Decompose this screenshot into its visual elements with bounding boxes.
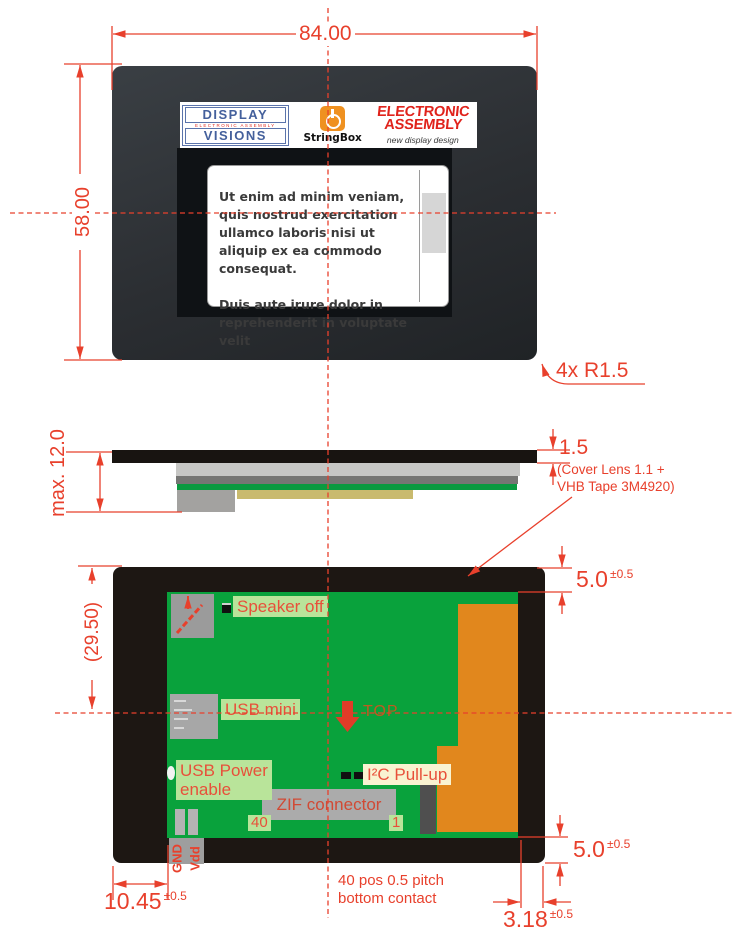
dim-max-height-label: max. 12.0: [48, 425, 68, 521]
electronic-assembly-logo: ELECTRONIC ASSEMBLY new display design: [369, 106, 477, 145]
orange-component: [458, 604, 518, 832]
zif-connector: ZIF connector: [262, 789, 396, 820]
i2c-resistor-1: [341, 772, 351, 779]
stringbox-label: StringBox: [303, 132, 363, 144]
screen-panel: Ut enim ad minim veniam, quis nostrud ex…: [207, 165, 449, 307]
scrollbar-track: [419, 170, 420, 302]
orange-component-step: [437, 746, 459, 832]
dim-top-label: 5.0±0.5: [576, 566, 633, 593]
usb-mini-connector: [170, 694, 218, 739]
side-layer-darkgray: [176, 476, 518, 484]
cover-lens-note: (Cover Lens 1.1 + VHB Tape 3M4920): [557, 461, 675, 495]
display-visions-logo: DISPLAY ELECTRONIC ASSEMBLY VISIONS: [182, 105, 289, 146]
zif-pin1-label: 1: [389, 815, 403, 831]
dv-logo-line2: ELECTRONIC ASSEMBLY: [185, 123, 286, 128]
scrollbar-thumb: [422, 193, 446, 253]
screen-paragraph-1: Ut enim ad minim veniam, quis nostrud ex…: [219, 188, 417, 278]
bottom-contact-note: 40 pos 0.5 pitch bottom contact: [338, 872, 444, 908]
ea-logo-tagline: new display design: [369, 135, 477, 145]
dim-height-label: 58.00: [72, 174, 94, 250]
usb-power-label: USB Power enable: [176, 760, 272, 800]
side-layer-lightgray: [176, 463, 520, 476]
vdd-label: Vdd: [189, 839, 202, 879]
corner-radius-label: 4x R1.5: [556, 359, 628, 383]
speaker-jumper: [222, 603, 231, 613]
ea-logo-line2: ASSEMBLY: [368, 119, 478, 133]
stringbox-logo: StringBox: [303, 106, 363, 144]
speaker: [171, 594, 214, 638]
dim-contact-label: 3.18±0.5: [503, 906, 573, 933]
technical-drawing: DISPLAY ELECTRONIC ASSEMBLY VISIONS Stri…: [0, 0, 739, 942]
side-layer-connector: [237, 490, 413, 499]
usb-power-pad: [167, 766, 175, 780]
stringbox-icon: [320, 106, 345, 131]
screen-text: Ut enim ad minim veniam, quis nostrud ex…: [219, 188, 417, 368]
usb-mini-label: USB mini: [221, 699, 300, 720]
dim-width-label: 84.00: [296, 22, 355, 46]
dim-bottom-label: 5.0±0.5: [573, 836, 630, 863]
dim-left-label: 10.45±0.5: [104, 888, 187, 915]
side-usb-block: [177, 490, 235, 512]
gnd-pin: [175, 809, 185, 835]
i2c-pullup-label: I²C Pull-up: [363, 764, 451, 785]
dv-logo-line1: DISPLAY: [185, 107, 286, 123]
dim-lens-label: 1.5: [559, 436, 588, 460]
dim-overall-label: (29.50): [82, 584, 104, 680]
top-direction-label: TOP: [363, 703, 399, 721]
logo-sticker: DISPLAY ELECTRONIC ASSEMBLY VISIONS Stri…: [180, 102, 477, 148]
vdd-pin: [188, 809, 198, 835]
dv-logo-line3: VISIONS: [185, 128, 286, 144]
side-cover-lens: [112, 450, 537, 463]
zif-connector-label: ZIF connector: [277, 795, 382, 815]
gnd-label: GND: [171, 839, 184, 879]
zif-pin40-label: 40: [248, 815, 271, 831]
speaker-label: Speaker off: [233, 596, 328, 617]
screen-paragraph-2: Duis aute irure dolor in reprehenderit i…: [219, 296, 417, 350]
